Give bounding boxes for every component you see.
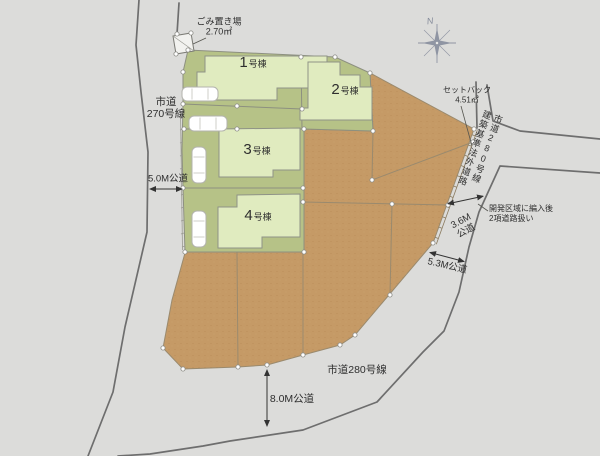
road-270-label: 市道 270号線 bbox=[147, 96, 186, 120]
setback-label: セットバック 4.51㎡ bbox=[443, 85, 491, 104]
lot-2-label: 2号棟 bbox=[331, 81, 358, 99]
car-icon bbox=[192, 147, 206, 183]
garbage-title: ごみ置き場 bbox=[196, 17, 241, 27]
lot-1-label: 1号棟 bbox=[239, 54, 266, 72]
compass-north-label: N bbox=[426, 16, 434, 27]
site-plan-root: ごみ置き場 2.70㎡ 市道 270号線 5.0M公道 1号棟 2号棟 3号棟 … bbox=[0, 0, 600, 456]
northeast-junction-edge bbox=[487, 85, 600, 139]
west-road-edge bbox=[88, 0, 148, 456]
compass-icon bbox=[418, 24, 456, 63]
car-icon bbox=[192, 211, 206, 247]
lot-4-label: 4号棟 bbox=[244, 207, 271, 225]
plan-drawing bbox=[0, 0, 600, 456]
car-icon bbox=[189, 116, 227, 131]
car-icon bbox=[182, 87, 218, 101]
lot-3-label: 3号棟 bbox=[243, 141, 270, 159]
garbage-label: ごみ置き場 2.70㎡ bbox=[196, 17, 241, 38]
garbage-road-stub bbox=[177, 3, 179, 34]
garbage-area: 2.70㎡ bbox=[196, 27, 241, 37]
road-280-south-label: 市道280号線 bbox=[327, 364, 387, 376]
dev-note-label: 開発区域に編入後 2項道路扱い bbox=[489, 204, 553, 224]
road-south-width-label: 8.0M公道 bbox=[270, 393, 314, 405]
road-west-width-label: 5.0M公道 bbox=[148, 175, 188, 186]
leader-garbage bbox=[193, 38, 206, 44]
